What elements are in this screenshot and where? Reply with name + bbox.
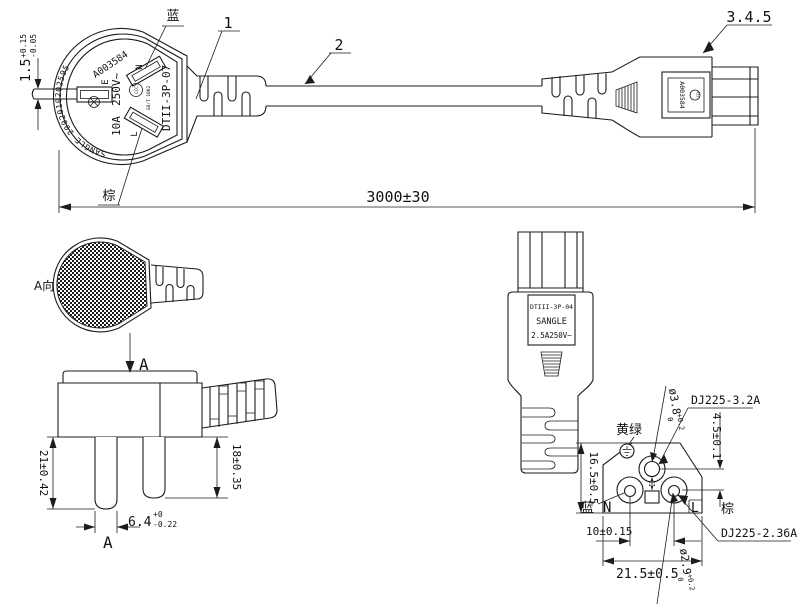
section-label: A [103, 533, 113, 552]
plug-current-marking: 10A [110, 116, 123, 136]
plug-model-marking: DTII-3P-07 [160, 65, 173, 131]
svg-text:6.4: 6.4 [128, 515, 152, 530]
svg-text:1.5: 1.5 [19, 59, 34, 82]
neutral-hole [625, 486, 636, 497]
plug-neutral-letter: N [135, 64, 145, 69]
rear-view-checker [57, 242, 147, 328]
face-neutral-letter: N [603, 500, 611, 516]
dim-total-length-text: 3000±30 [366, 188, 429, 206]
connector-model-marking: DTIII-3P-04 [530, 303, 573, 311]
ccc-mark-text: CCC [134, 86, 139, 94]
dim-width-text: 21.5±0.5 [616, 567, 679, 582]
dim-pitch-text: 10±0.15 [586, 525, 632, 538]
earth-hole [645, 462, 660, 477]
pin-terminal-label: DJ225-2.36A [721, 526, 797, 540]
view-direction-label: A向 [34, 278, 54, 293]
dim-pin-length-text: 18±0.35 [230, 444, 243, 490]
earth-wire-label: 黄绿 [616, 423, 642, 438]
earth-pin-profile [95, 437, 117, 509]
svg-text:-0.22: -0.22 [153, 520, 177, 529]
connector-ccc-text: CCC [696, 92, 700, 98]
flat-pin-profile [143, 437, 165, 498]
svg-text:+0.15: +0.15 [19, 34, 28, 58]
drawing-svg: SANGLE 2002010202595 A003584 250V~ 10A D… [0, 0, 800, 608]
svg-text:+0: +0 [153, 510, 163, 519]
callout-strain-relief: 1 [223, 14, 232, 32]
face-live-letter: L [691, 501, 699, 516]
dim-earth-pin-length-text: 21±0.42 [37, 450, 50, 496]
dim-height-text: 16.5±0.5 [587, 452, 600, 505]
plug-voltage-marking: 250V~ [110, 73, 123, 106]
connector-serial-marking: A003584 [678, 81, 686, 108]
wire-blue-label: 蓝 [166, 9, 179, 24]
face-brown-label: 棕 [721, 502, 734, 517]
earth-symbol-icon [620, 444, 634, 458]
dim-earth-offset-text: 4.5±0.1 [710, 413, 723, 459]
connector-rating-marking: 2.5A250V~ [531, 331, 572, 340]
earth-pin-slot [77, 87, 112, 102]
plug-standard-marking: GB/T 1002 [146, 86, 152, 111]
callout-cable: 2 [334, 36, 343, 54]
wire-brown-label: 棕 [102, 189, 115, 204]
plug-earth-letter: E [101, 79, 111, 84]
svg-text:-0.05: -0.05 [29, 34, 38, 58]
callout-connector: 3.4.5 [726, 8, 771, 26]
engineering-drawing-power-cord: SANGLE 2002010202595 A003584 250V~ 10A D… [0, 0, 800, 608]
recess-key-notch [645, 491, 659, 503]
connector-brand-marking: SANGLE [536, 317, 567, 327]
plug-live-letter: L [130, 131, 140, 136]
earth-terminal-label: DJ225-3.2A [691, 393, 760, 407]
